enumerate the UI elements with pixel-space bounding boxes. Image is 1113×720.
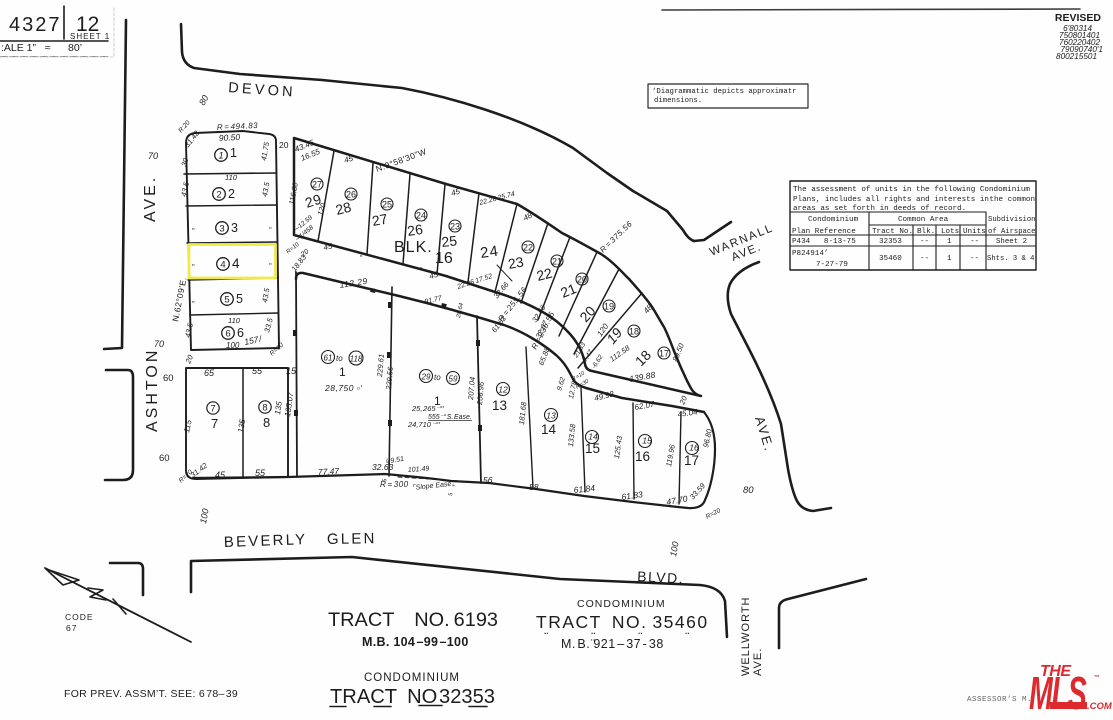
svg-text:32353: 32353 — [879, 238, 902, 246]
svg-text:7: 7 — [211, 416, 218, 431]
svg-text:23: 23 — [450, 222, 460, 232]
svg-text:77.47: 77.47 — [318, 466, 340, 477]
svg-text:21: 21 — [552, 257, 562, 267]
svg-text:24: 24 — [479, 243, 500, 262]
svg-text:18: 18 — [629, 327, 639, 337]
svg-text:The assessment of units in the: The assessment of units in the following… — [793, 186, 1030, 194]
svg-text:Sheet 2: Sheet 2 — [996, 238, 1027, 246]
svg-text:to: to — [336, 354, 343, 363]
svg-text:4: 4 — [220, 260, 225, 271]
svg-text:GLEN: GLEN — [327, 530, 377, 548]
svg-text:3: 3 — [231, 221, 238, 235]
svg-text:4: 4 — [232, 256, 240, 271]
svg-text:56: 56 — [483, 475, 493, 485]
svg-text:„: „ — [192, 222, 195, 231]
svg-text:WELLWORTH: WELLWORTH — [740, 597, 752, 677]
svg-text:8: 8 — [262, 403, 267, 414]
svg-text:7: 7 — [210, 404, 215, 415]
svg-text:TRACT NO. 6193: TRACT NO. 6193 — [328, 610, 498, 631]
svg-text:Tract No.: Tract No. — [872, 228, 913, 236]
svg-text:28,750 ▫′: 28,750 ▫′ — [324, 383, 362, 393]
svg-text:20: 20 — [577, 275, 587, 285]
svg-text:22: 22 — [523, 243, 533, 253]
svg-text:27: 27 — [371, 210, 389, 228]
svg-text:TRACT NO 32353: TRACT NO 32353 — [330, 686, 495, 708]
svg-text:1: 1 — [218, 151, 223, 162]
svg-text:29: 29 — [421, 373, 431, 382]
svg-text:ASHTON: ASHTON — [144, 348, 161, 432]
svg-text:..: .. — [591, 627, 595, 636]
svg-text:12: 12 — [498, 385, 508, 395]
svg-text:70: 70 — [154, 339, 164, 349]
svg-text:BEVERLY: BEVERLY — [224, 531, 308, 551]
svg-text:SHEET 1: SHEET 1 — [70, 32, 110, 41]
svg-text:to: to — [434, 373, 441, 382]
svg-text:24: 24 — [416, 211, 426, 221]
svg-text:2: 2 — [216, 190, 221, 201]
svg-text:55: 55 — [252, 366, 263, 376]
svg-text:17: 17 — [659, 349, 669, 359]
svg-text:110: 110 — [228, 316, 241, 325]
svg-text:--: -- — [970, 238, 979, 246]
svg-text:15: 15 — [286, 366, 297, 376]
svg-text:1: 1 — [947, 238, 952, 246]
svg-text:110: 110 — [225, 173, 238, 182]
svg-text:P434 8-13-75: P434 8-13-75 — [792, 238, 856, 246]
svg-text:ASSESSOR’S M.: ASSESSOR’S M. — [967, 696, 1032, 704]
svg-text:800215501: 800215501 — [1056, 52, 1097, 61]
svg-text:--: -- — [970, 255, 979, 263]
svg-text:15: 15 — [585, 441, 600, 456]
svg-text:135: 135 — [273, 400, 284, 415]
svg-text:..: .. — [544, 627, 548, 636]
svg-text:60: 60 — [159, 453, 170, 464]
svg-text:8: 8 — [263, 415, 270, 430]
svg-text:65: 65 — [204, 368, 215, 378]
svg-text:CODE: CODE — [65, 612, 94, 622]
svg-text:BLVD.: BLVD. — [637, 568, 685, 586]
svg-text:--: -- — [920, 238, 929, 246]
svg-text:60: 60 — [163, 373, 174, 384]
svg-text:AVE.: AVE. — [752, 648, 764, 676]
svg-text:1: 1 — [230, 146, 237, 160]
svg-text::ALE 1” ≈ 80’: :ALE 1” ≈ 80’ — [1, 42, 82, 54]
svg-text:67: 67 — [66, 623, 77, 633]
svg-text:„: „ — [269, 257, 272, 266]
svg-text:Units: Units — [963, 228, 986, 236]
svg-text:areas as set forth in deeds of: areas as set forth in deeds of record. — [793, 205, 966, 213]
svg-text:17: 17 — [684, 453, 699, 468]
svg-text:Condominium: Condominium — [808, 216, 859, 224]
svg-text:100: 100 — [226, 341, 240, 350]
svg-text:24,710 ⁻°′: 24,710 ⁻°′ — [407, 420, 441, 429]
svg-text:™: ™ — [1094, 674, 1100, 681]
svg-text:25: 25 — [382, 200, 392, 210]
svg-text:58: 58 — [529, 482, 539, 492]
svg-text:..: .. — [685, 627, 689, 636]
svg-text:13: 13 — [492, 398, 507, 413]
svg-text:M.B. 104 –99 –100: M.B. 104 –99 –100 — [362, 635, 469, 649]
svg-text:of Airspace: of Airspace — [988, 228, 1035, 236]
svg-text:19: 19 — [604, 302, 614, 312]
svg-text:16: 16 — [435, 250, 453, 267]
svg-text:1: 1 — [947, 255, 952, 263]
svg-text:FOR PREV. ASSM’T. SEE: 6 78– 3: FOR PREV. ASSM’T. SEE: 6 78– 39 — [64, 688, 238, 700]
svg-text:Lots: Lots — [941, 228, 959, 236]
svg-text:7-27-79: 7-27-79 — [816, 261, 848, 269]
svg-text:BLK.: BLK. — [394, 239, 433, 256]
svg-text:TRACT NO. 35460: TRACT NO. 35460 — [536, 612, 709, 632]
svg-text:Shts. 3 & 4: Shts. 3 & 4 — [987, 255, 1034, 263]
svg-text:Plans, includes all rights and: Plans, includes all rights and interests… — [793, 196, 1035, 204]
svg-text:Blk.: Blk. — [917, 228, 935, 236]
svg-text:25, 265⁻°′: 25, 265⁻°′ — [411, 404, 445, 413]
svg-text:4327: 4327 — [9, 14, 62, 36]
svg-text:MLS: MLS — [1029, 668, 1087, 720]
svg-text:1: 1 — [339, 365, 346, 379]
svg-text:20: 20 — [279, 140, 289, 150]
svg-text:35460: 35460 — [879, 255, 902, 263]
svg-text:16: 16 — [689, 443, 699, 453]
svg-text:„: „ — [192, 295, 195, 304]
svg-text:dimensions.: dimensions. — [654, 97, 702, 105]
svg-text:P824914’: P824914’ — [792, 250, 828, 258]
svg-text:80: 80 — [743, 485, 754, 496]
svg-text:2: 2 — [228, 187, 235, 201]
svg-text:26: 26 — [406, 221, 424, 239]
svg-text:REVISED: REVISED — [1055, 12, 1102, 24]
svg-text:AVE.: AVE. — [142, 175, 159, 222]
svg-text:5: 5 — [236, 292, 243, 306]
svg-text:27: 27 — [312, 180, 322, 190]
svg-text:„: „ — [192, 258, 195, 267]
svg-text:59: 59 — [449, 375, 458, 384]
svg-text:6: 6 — [225, 329, 230, 340]
svg-text:23: 23 — [507, 253, 525, 271]
svg-text:Common Area: Common Area — [898, 216, 949, 224]
svg-text:118: 118 — [350, 355, 363, 364]
svg-text:Plan Reference: Plan Reference — [792, 228, 856, 236]
svg-text:‘Diagrammatic depicts approxim: ‘Diagrammatic depicts approximatr — [652, 88, 797, 96]
svg-text:61: 61 — [324, 354, 333, 363]
svg-text:16: 16 — [635, 449, 650, 464]
svg-text:70: 70 — [148, 151, 158, 161]
svg-text:CONDOMINIUM: CONDOMINIUM — [577, 598, 666, 610]
svg-text:.COM: .COM — [1087, 701, 1113, 712]
svg-text:Subdivision: Subdivision — [988, 216, 1035, 224]
svg-text:--: -- — [920, 255, 929, 263]
svg-text:3: 3 — [219, 224, 224, 235]
svg-text:14: 14 — [541, 422, 557, 437]
svg-text:13: 13 — [546, 411, 556, 421]
svg-text:90.50: 90.50 — [219, 132, 241, 143]
svg-text:14: 14 — [588, 432, 598, 442]
svg-text:25: 25 — [441, 232, 458, 250]
svg-text:101.49: 101.49 — [408, 466, 430, 474]
svg-text:..: .. — [638, 627, 642, 636]
svg-text:„: „ — [269, 221, 272, 230]
svg-text:M. B. ̈921 – 37 - 38: M. B. ̈921 – 37 - 38 — [561, 637, 664, 651]
svg-text:5: 5 — [224, 295, 229, 306]
svg-text:15: 15 — [642, 436, 652, 446]
svg-text:CONDOMINIUM: CONDOMINIUM — [364, 672, 460, 684]
